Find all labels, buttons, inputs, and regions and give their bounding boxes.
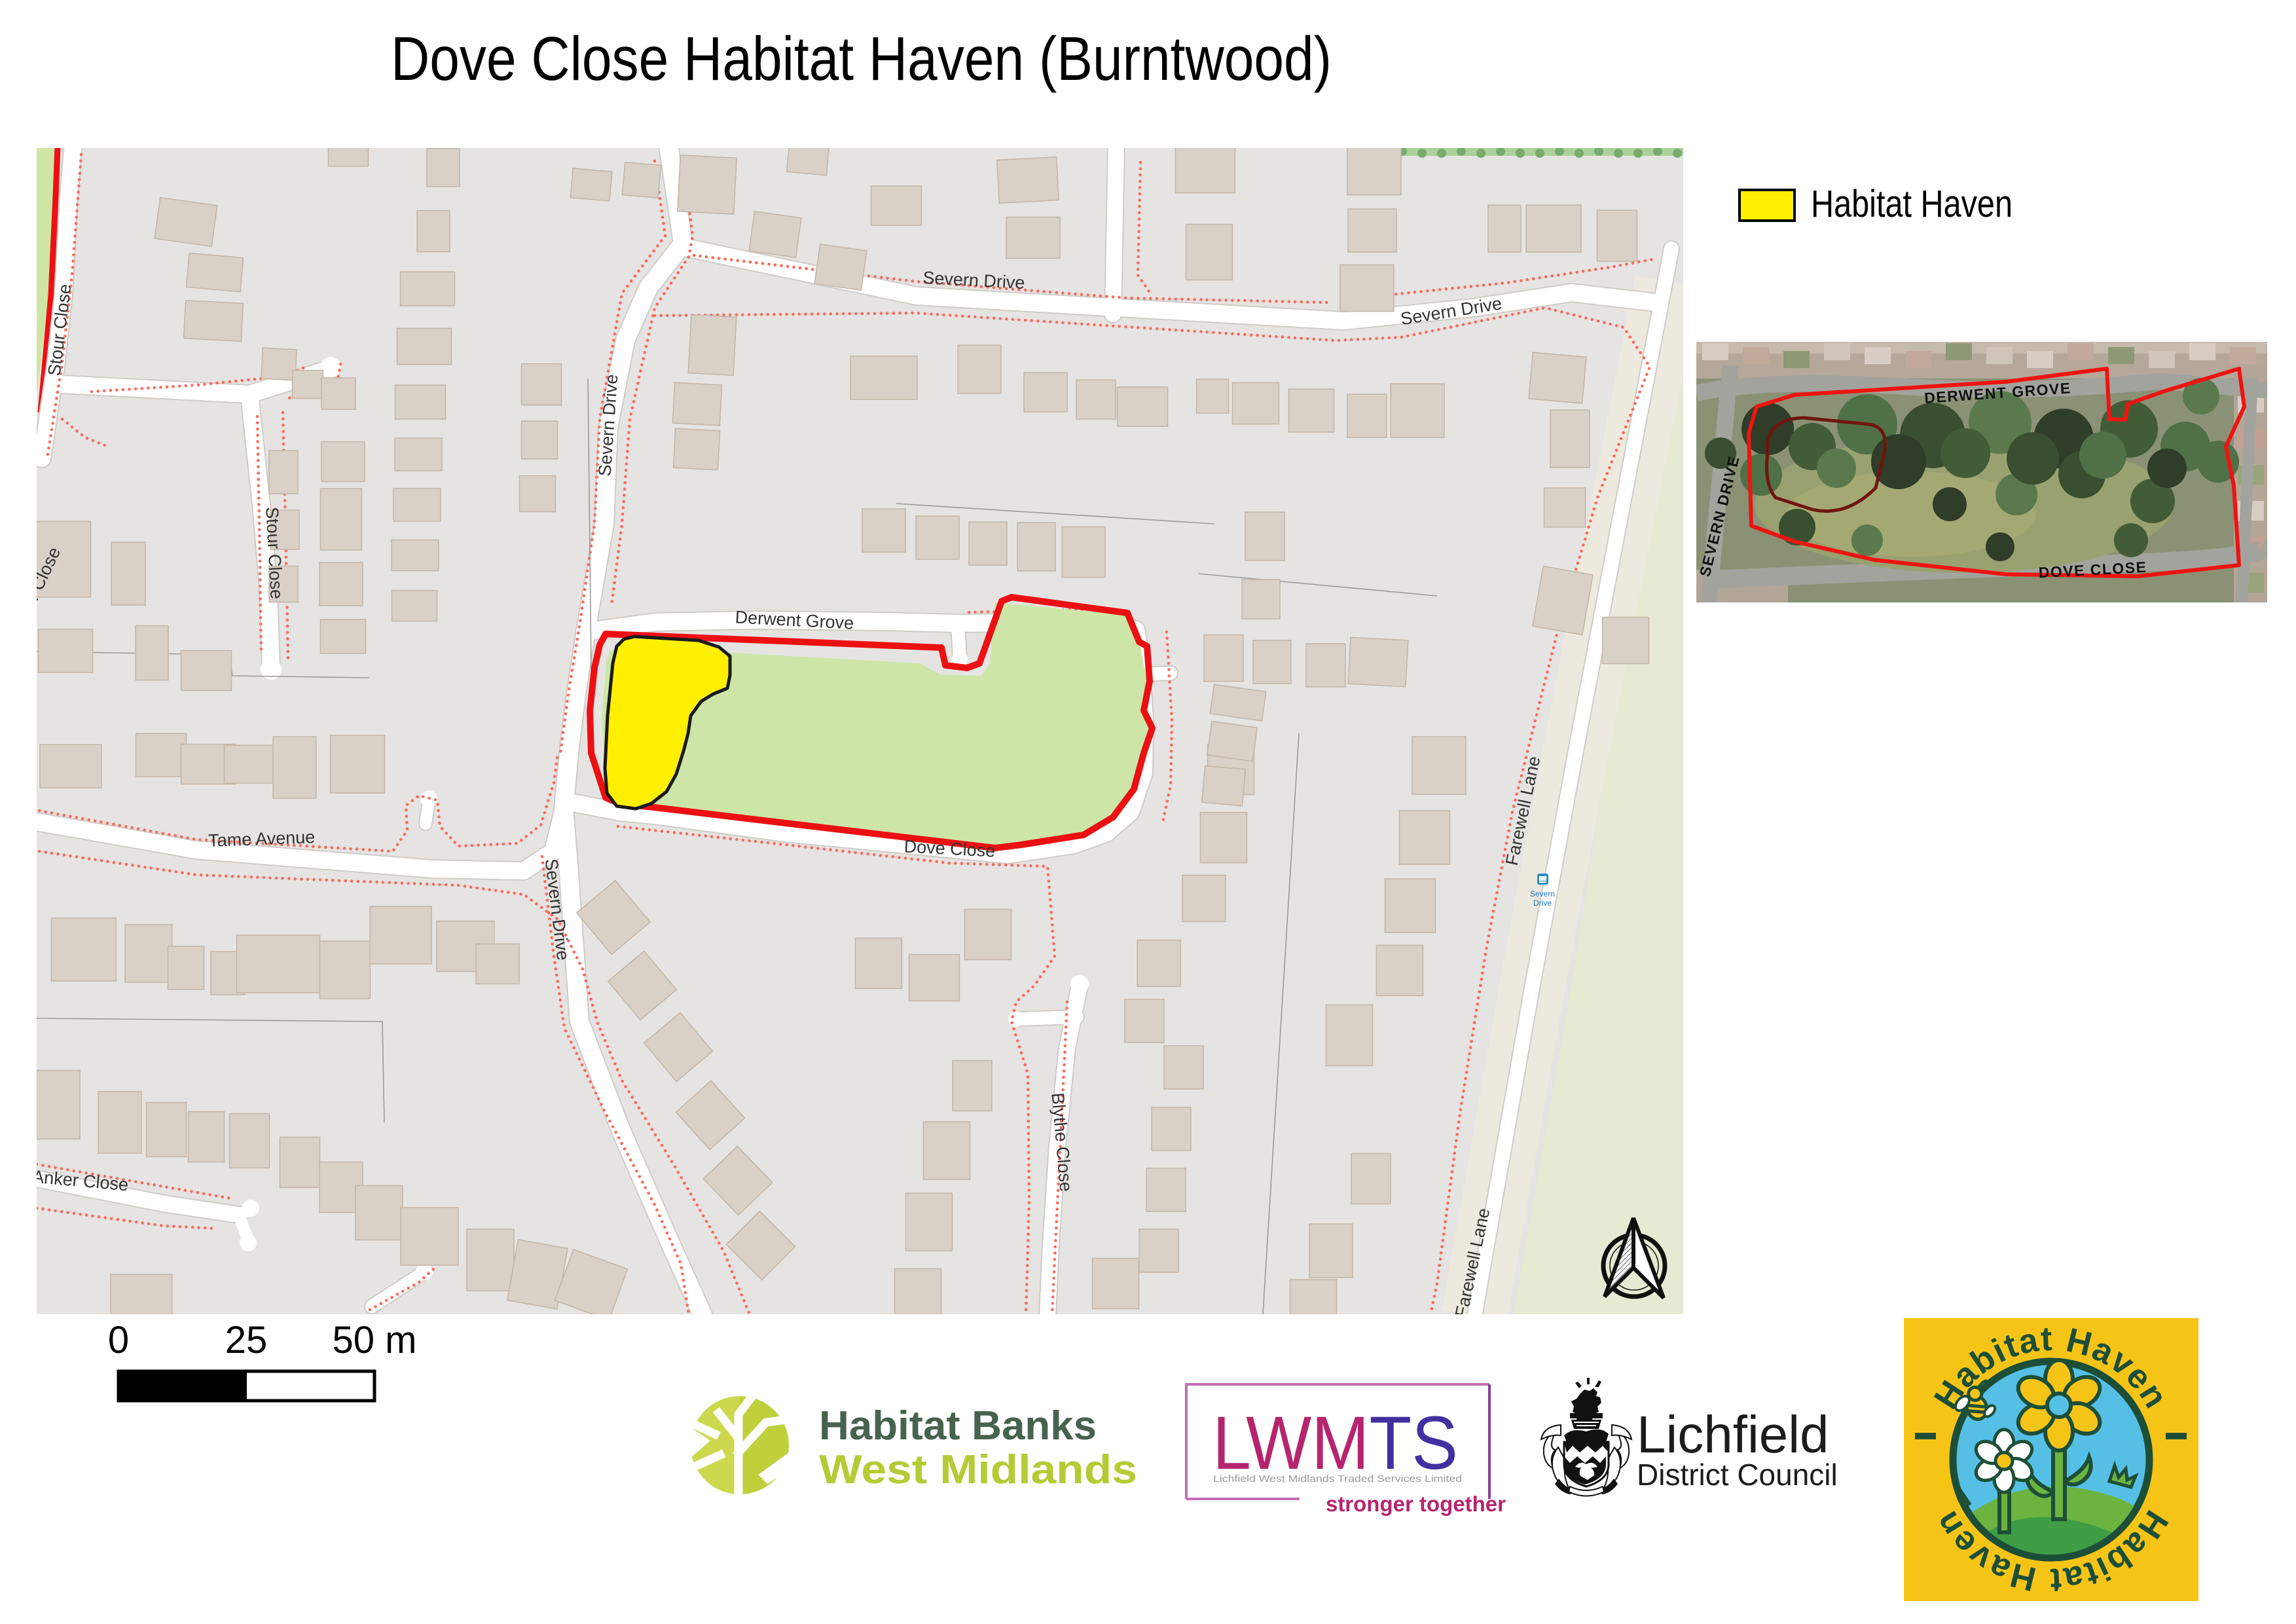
svg-text:Lichfield: Lichfield [1637, 1405, 1829, 1464]
svg-text:Tame Avenue: Tame Avenue [208, 827, 316, 851]
svg-text:LWMTS: LWMTS [1212, 1401, 1458, 1485]
svg-text:Habitat Haven: Habitat Haven [1811, 183, 2013, 225]
svg-text:0: 0 [108, 1319, 129, 1361]
svg-text:50 m: 50 m [333, 1319, 417, 1361]
svg-text:Dove Close Habitat Haven (Burn: Dove Close Habitat Haven (Burntwood) [391, 24, 1332, 94]
svg-text:Drive: Drive [1533, 898, 1552, 908]
svg-text:District Council: District Council [1637, 1458, 1838, 1492]
svg-text:Habitat Banks: Habitat Banks [819, 1403, 1097, 1449]
svg-text:Lichfield West Midlands Traded: Lichfield West Midlands Traded Services … [1213, 1473, 1462, 1485]
svg-text:25: 25 [225, 1319, 268, 1361]
svg-text:West Midlands: West Midlands [819, 1447, 1137, 1492]
svg-text:stronger together: stronger together [1326, 1492, 1506, 1516]
svg-text:Severn: Severn [1530, 889, 1555, 898]
